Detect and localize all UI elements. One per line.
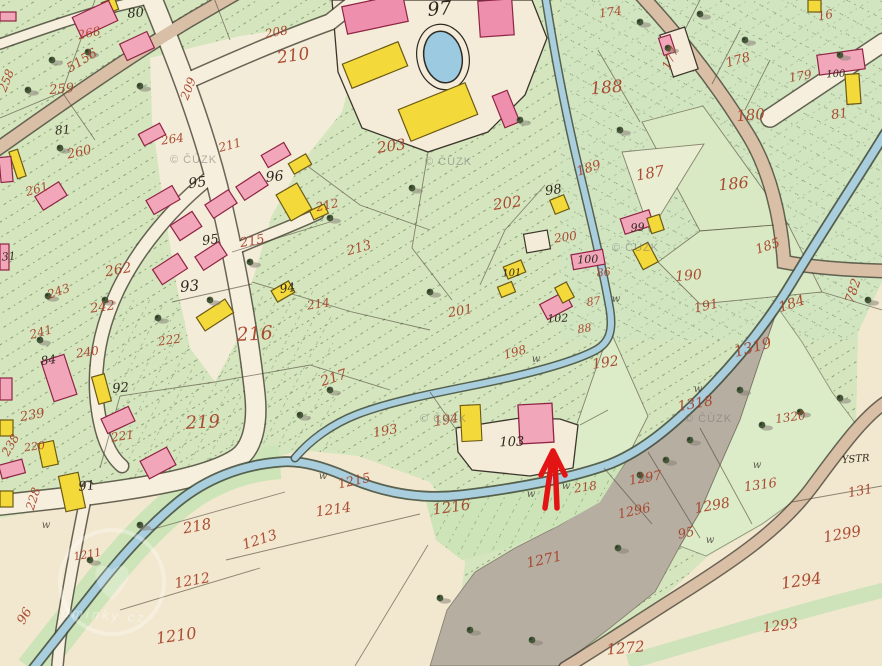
parcel-label-81: 81 <box>830 106 848 123</box>
parcel-label-186: 186 <box>717 173 749 195</box>
parcel-label-81: 81 <box>54 122 70 137</box>
map-viewport[interactable]: 2682085156258259260261264211209210203202… <box>0 0 882 666</box>
parcel-label-94: 94 <box>279 280 296 296</box>
parcel-label-100: 100 <box>577 252 599 266</box>
parcel-label-103: 103 <box>499 435 524 451</box>
meadow-symbol: w <box>753 460 762 471</box>
cuzk-watermark: © ČÚZK <box>170 153 217 166</box>
building-outline <box>524 230 551 253</box>
parcel-label-88: 88 <box>577 321 593 336</box>
red-arrow-stroke <box>555 459 557 508</box>
parcel-label-31: 31 <box>1 249 16 263</box>
parcel-label-259: 259 <box>48 81 75 98</box>
meadow-symbol: w <box>42 520 51 531</box>
parcel-label-86: 86 <box>596 265 611 279</box>
cuzk-watermark: © ČÚZK <box>685 412 732 425</box>
meadow-symbol: w <box>319 471 328 482</box>
cuzk-watermark: © ČÚZK <box>612 241 659 254</box>
parcel-label-188: 188 <box>590 77 624 100</box>
cuzk-watermark: © ČÚZK <box>420 412 467 425</box>
meadow-symbol: w <box>694 384 703 395</box>
cuzk-watermark: © ČÚZK <box>425 155 472 168</box>
parcel-label-93: 93 <box>179 276 200 296</box>
parcel-label-98: 98 <box>544 182 562 199</box>
parcel-label-180: 180 <box>736 105 767 125</box>
parcel-label-216: 216 <box>235 322 273 346</box>
building-pink <box>0 378 12 400</box>
cadastral-map-canvas[interactable]: 2682085156258259260261264211209210203202… <box>0 0 882 666</box>
parcel-label-101: 101 <box>502 268 522 280</box>
building-pink <box>0 157 13 183</box>
parcel-label-92: 92 <box>112 380 130 396</box>
parcel-label-95: 95 <box>188 174 208 192</box>
parcel-label-91: 91 <box>78 478 96 494</box>
building-pink <box>0 12 16 21</box>
meadow-symbol: w <box>527 489 536 500</box>
building-yellow <box>845 74 861 105</box>
parcel-label-100: 100 <box>826 68 846 80</box>
parcel-label-87: 87 <box>586 294 602 309</box>
building-yellow <box>0 491 13 507</box>
meadow-symbol: w <box>562 481 571 492</box>
building-pink <box>478 0 514 37</box>
parcel-label-95: 95 <box>201 232 219 249</box>
parcel-label-16: 16 <box>817 7 835 24</box>
parcel-label-102: 102 <box>547 311 569 325</box>
parcel-label-84: 84 <box>40 352 57 368</box>
parcel-label-1272: 1272 <box>606 637 646 658</box>
parcel-label-190: 190 <box>675 267 703 285</box>
meadow-symbol: w <box>612 294 621 305</box>
meadow-symbol: w <box>706 535 715 546</box>
parcel-label-97: 97 <box>426 0 453 21</box>
parcel-label-99: 99 <box>630 220 645 234</box>
parcel-label-219: 219 <box>184 411 220 434</box>
meadow-symbol: w <box>532 354 541 365</box>
parcel-label-80: 80 <box>127 5 145 21</box>
parcel-label-96: 96 <box>265 168 284 185</box>
